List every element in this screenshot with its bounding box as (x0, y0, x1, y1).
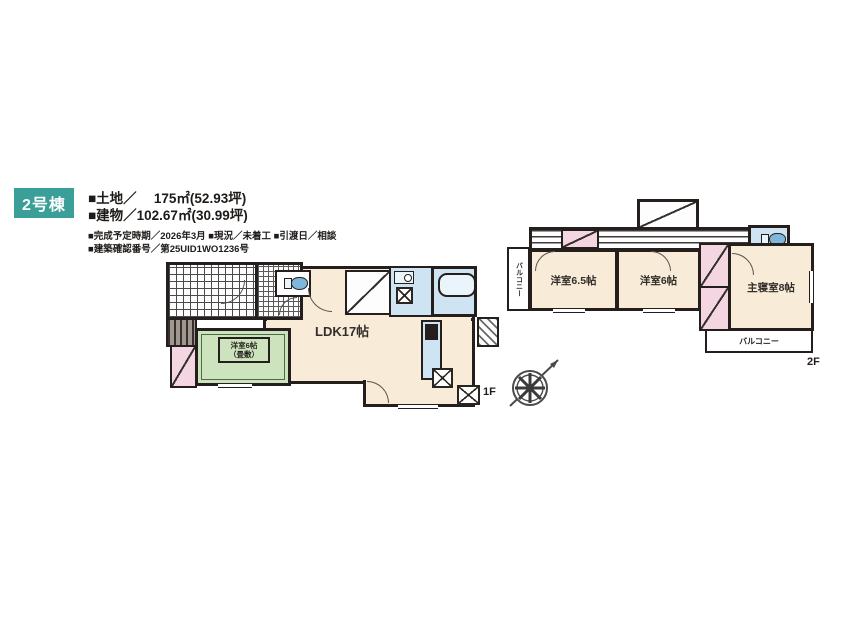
balcony-bottom-label: バルコニー (739, 336, 779, 347)
north-compass-icon (500, 352, 568, 414)
floor-label-1f: 1F (483, 386, 496, 398)
closet-upper-2f (699, 243, 730, 288)
bathtub-icon (438, 273, 476, 297)
floorplan-page: 2号棟 ■土地／ 175㎡(52.93坪) ■建物／102.67㎡(30.99坪… (0, 0, 848, 636)
western-room-label-line2: （畳敷） (229, 350, 259, 359)
building-area-text: ■建物／102.67㎡(30.99坪) (88, 204, 248, 224)
window-2f-master (809, 271, 814, 303)
room-west-6_5-label: 洋室6.5帖 (550, 273, 596, 288)
entry-side-panel (170, 345, 197, 388)
window-1f-southeast (398, 404, 438, 409)
stairs-2f (637, 199, 699, 230)
entrance-porch-tiles (166, 262, 258, 320)
window-2f-left (553, 308, 585, 313)
master-bedroom-label: 主寝室8帖 (747, 280, 795, 295)
hall-closet-2f (561, 229, 599, 249)
western-room-1f: 洋室6帖 （畳敷） (195, 328, 291, 386)
completion-status-text: ■完成予定時期／2026年3月 ■現況／未着工 ■引渡日／相談 (88, 228, 336, 242)
porch-step-strip (166, 318, 197, 347)
storage-box-1 (432, 368, 453, 388)
floorplan-1f: 洋室6帖 （畳敷） LDK17帖 1F (163, 258, 508, 418)
toilet-icon-1f (291, 277, 308, 290)
closet-lower-2f (699, 286, 730, 331)
window-2f-middle (643, 308, 675, 313)
confirmation-number-text: ■建築確認番号／第25UID1WO1236号 (88, 241, 249, 255)
stairs-1f (345, 270, 391, 315)
western-room-label-line1: 洋室6帖 (229, 341, 259, 350)
building-number-badge: 2号棟 (14, 188, 74, 218)
ldk-label: LDK17帖 (315, 321, 369, 340)
floor-label-2f: 2F (807, 356, 820, 368)
side-hatch-box (477, 317, 499, 347)
window-1f-south (218, 383, 252, 388)
washroom-1f (389, 266, 433, 317)
stove-icon (425, 324, 438, 340)
balcony-left: バルコニー (507, 247, 530, 311)
balcony-bottom: バルコニー (705, 329, 813, 353)
storage-box-2 (457, 385, 480, 405)
toilet-tank-icon-1f (284, 278, 292, 289)
room-west-6-label: 洋室6帖 (640, 273, 677, 288)
washing-machine-box (396, 287, 413, 304)
bathroom-1f (431, 266, 477, 317)
balcony-left-label: バルコニー (514, 262, 524, 297)
western-room-label-box: 洋室6帖 （畳敷） (218, 337, 270, 363)
toilet-room-1f (275, 270, 311, 297)
washbasin-icon (394, 271, 414, 284)
